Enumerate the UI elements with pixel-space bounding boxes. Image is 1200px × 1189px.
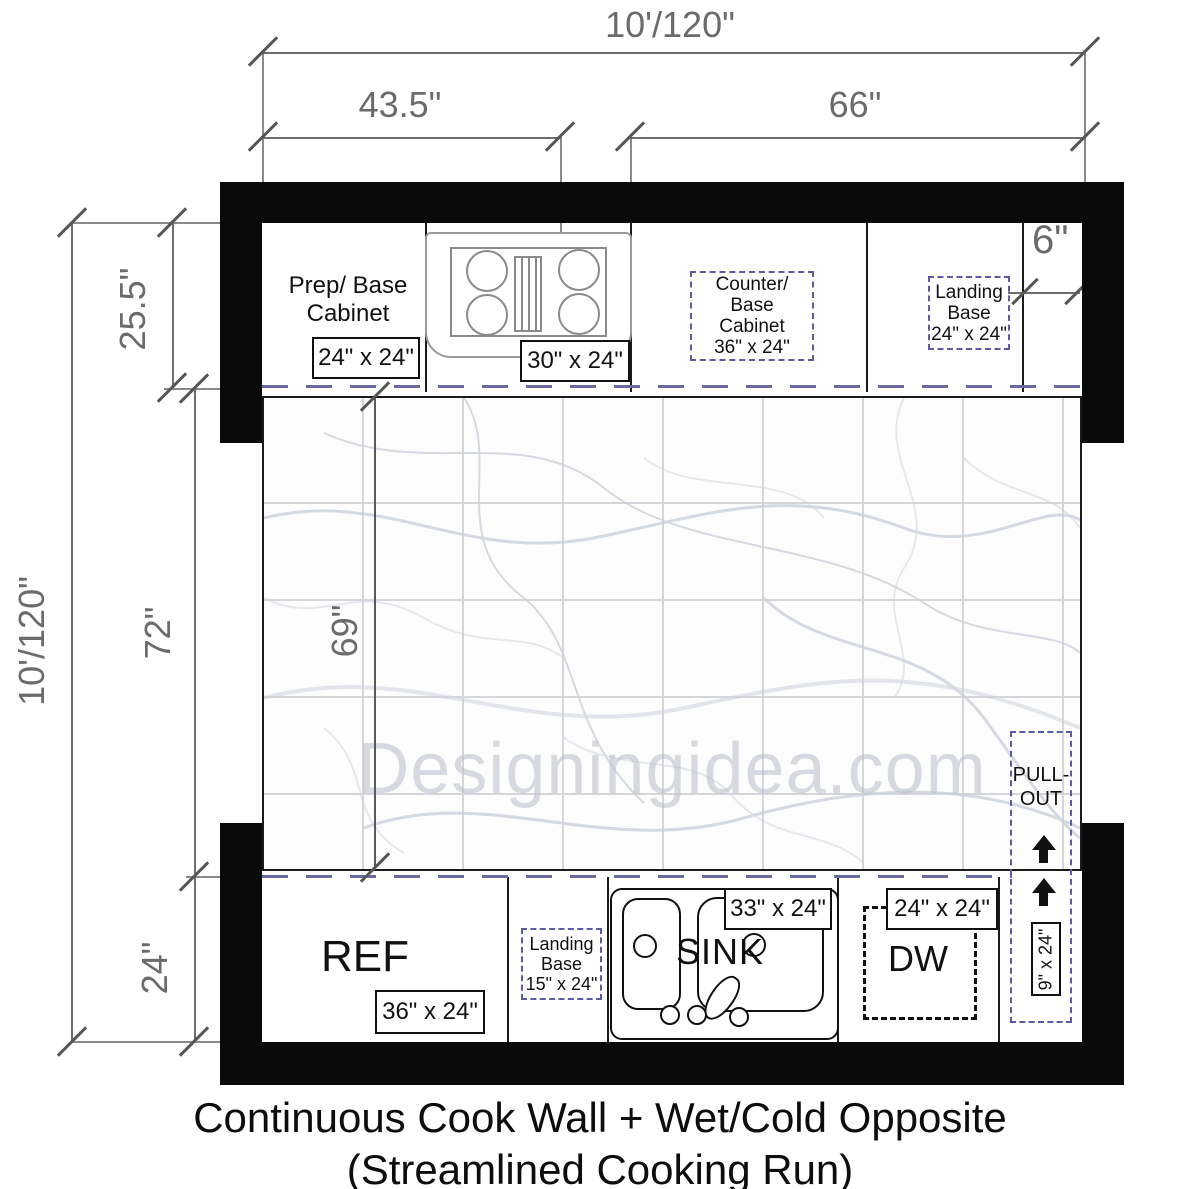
dim-line-bottom-counter-depth bbox=[194, 878, 196, 1042]
kitchen-floor-tiles: Designingidea.com bbox=[262, 396, 1082, 871]
dim-line-floor-inner bbox=[374, 397, 376, 868]
burner-icon bbox=[466, 294, 508, 336]
dim-line-top-right-run bbox=[630, 137, 1085, 139]
wall-top bbox=[220, 182, 1124, 223]
refrigerator-size-label: 36" x 24" bbox=[375, 990, 485, 1034]
dim-top-left-run: 43.5" bbox=[330, 84, 470, 126]
sink-size-label: 33" x 24" bbox=[724, 888, 832, 930]
drain-icon bbox=[729, 1007, 749, 1027]
zone-line-ref-landing bbox=[507, 877, 509, 1042]
countertop-edge-bottom bbox=[262, 875, 1012, 878]
kitchen-floor-plan: Designingidea.com Prep/ Base Cabinet 24"… bbox=[0, 0, 1200, 1189]
watermark: Designingidea.com bbox=[264, 728, 1080, 810]
wall-right-lower bbox=[1082, 823, 1124, 1085]
wall-left-upper bbox=[220, 182, 262, 443]
dishwasher-label: DW bbox=[863, 938, 973, 980]
dim-top-counter-depth: 25.5" bbox=[112, 229, 154, 389]
wall-right-upper bbox=[1082, 182, 1124, 443]
burner-icon bbox=[558, 293, 600, 335]
burner-icon bbox=[466, 250, 508, 292]
prep-size-label: 24" x 24" bbox=[312, 337, 420, 379]
arrow-up-icon bbox=[1032, 878, 1056, 893]
extension-line bbox=[262, 52, 264, 182]
dim-line-floor-clearance bbox=[194, 389, 196, 878]
dim-line-top-left-run bbox=[263, 137, 560, 139]
counter-base-cabinet-box: Counter/ Base Cabinet 36" x 24" bbox=[690, 271, 814, 361]
prep-cabinet-label: Prep/ Base Cabinet bbox=[268, 272, 428, 328]
zone-line-landing-gap bbox=[1022, 223, 1024, 392]
sink-label: SINK bbox=[640, 931, 800, 973]
cooktop-grill-icon bbox=[514, 256, 542, 332]
dim-top-total: 10'/120" bbox=[560, 4, 780, 46]
landing-base-top-box: Landing Base 24" x 24" bbox=[928, 276, 1010, 350]
dim-bottom-counter-depth: 24" bbox=[134, 868, 176, 1068]
refrigerator-label: REF bbox=[300, 932, 430, 982]
zone-line-counter-landing bbox=[866, 223, 868, 392]
dim-line-top-total bbox=[263, 52, 1085, 54]
zone-line-landing-sink bbox=[607, 877, 609, 1042]
plan-title: Continuous Cook Wall + Wet/Cold Opposite… bbox=[0, 1092, 1200, 1189]
extension-line bbox=[1084, 52, 1086, 182]
zone-line-dw-pullout bbox=[998, 877, 1000, 1042]
dim-line-left-total bbox=[71, 223, 73, 1042]
extension-line bbox=[71, 222, 220, 224]
cooktop-size-label: 30" x 24" bbox=[520, 340, 630, 382]
dim-floor-clearance: 72" bbox=[137, 533, 179, 733]
burner-icon bbox=[558, 249, 600, 291]
dim-floor-inner-clearance: 69" bbox=[324, 531, 366, 731]
dishwasher-size-label: 24" x 24" bbox=[886, 888, 998, 930]
landing-base-bottom-box: Landing Base 15" x 24" bbox=[521, 928, 602, 1000]
wall-left-lower bbox=[220, 823, 262, 1085]
drain-icon bbox=[660, 1005, 680, 1025]
arrow-up-icon bbox=[1032, 835, 1056, 850]
dim-line-top-counter-depth bbox=[172, 223, 174, 388]
dim-top-right-run: 66" bbox=[790, 84, 920, 126]
wall-bottom bbox=[220, 1042, 1124, 1085]
dim-right-gap: 6" bbox=[1032, 218, 1068, 263]
dim-left-total: 10'/120" bbox=[11, 531, 53, 751]
pullout-size-label: 9" x 24" bbox=[1031, 922, 1061, 996]
arrow-up-stem bbox=[1039, 849, 1048, 863]
arrow-up-stem bbox=[1039, 892, 1048, 906]
